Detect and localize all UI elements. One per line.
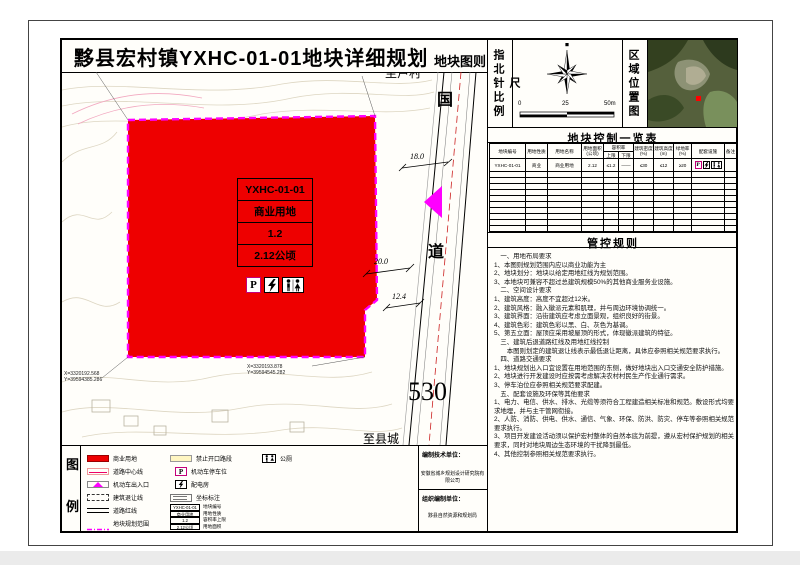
- parcel-area: 2.12公顷: [238, 245, 312, 266]
- th-green: 绿地率(%): [674, 144, 692, 159]
- th-nature: 用地性质: [526, 144, 548, 159]
- cell-density: ≤30: [634, 159, 654, 172]
- control-table-empty-rows: [490, 172, 737, 232]
- rule-line: 2、地块进行开发建设时应按需考虑解决农村村民生产作业通行需求。: [494, 373, 734, 382]
- table-cell-empty: [725, 226, 737, 232]
- rules-title: 管控规则: [489, 235, 737, 251]
- table-cell-empty: [674, 226, 692, 232]
- th-far: 容积率: [604, 144, 634, 152]
- scale-tick-25: 25: [562, 101, 569, 107]
- table-cell-empty: [619, 226, 634, 232]
- dest-label-south: 至县城: [363, 430, 399, 445]
- parking-icon: P: [175, 467, 187, 476]
- rule-line: 2、地块划分：地块以给定用地红线为规划范围。: [494, 270, 734, 279]
- parcel-facility-icons: P: [246, 277, 304, 293]
- legend-label-char2: 例: [66, 496, 79, 515]
- dim-setback: 20.0: [374, 257, 388, 266]
- table-cell-empty: [634, 226, 654, 232]
- scale-tick-50: 50m: [604, 101, 616, 107]
- rule-line: 三、建筑后退道路红线及用地红线控制: [494, 339, 734, 348]
- th-far-min: 下限: [619, 152, 634, 159]
- cell-height: ≤12: [654, 159, 674, 172]
- rule-line: 4、其他控制参照相关规范要求执行。: [494, 451, 734, 460]
- cell-name: 商业用地: [548, 159, 582, 172]
- redline-swatch: [87, 508, 109, 513]
- rules-text: 一、用地布局要求1、本图则规划范围内应以商业功能为主2、地块划分：地块以给定用地…: [494, 253, 734, 529]
- legend-item-commercial: 商业用地: [87, 454, 137, 463]
- location-cell-divider-a: [622, 40, 623, 127]
- table-cell-empty: [526, 226, 548, 232]
- table-cell-empty: [692, 226, 725, 232]
- road-name-char1: 国: [437, 86, 453, 110]
- building-footprints: [92, 400, 304, 435]
- boundary-swatch: [87, 520, 109, 527]
- th-code: 地块编号: [490, 144, 526, 159]
- entrance-swatch: [87, 481, 109, 488]
- table-row: YXHC-01-01 商业 商业用地 2.12 ≤1.2 —— ≤30 ≤12 …: [490, 159, 737, 172]
- location-map-image[interactable]: [648, 40, 737, 127]
- table-cell-empty: [548, 226, 582, 232]
- control-table: 地块编号 用地性质 用地名称 用地面积(公顷) 容积率 建筑密度(%) 建筑高度…: [489, 143, 737, 232]
- cell-note: [725, 159, 737, 172]
- tech-unit-value: 安徽省城乡规划设计研究院有限公司: [419, 470, 486, 484]
- legend-item-setback: 建筑退让线: [87, 493, 143, 502]
- legend-item-entrance: 机动车出入口: [87, 480, 149, 489]
- scale-bar-icon: [520, 112, 614, 117]
- coord-label-bottommid: X=3320193.878Y=39594545.282: [247, 364, 285, 376]
- tech-unit-label: 编制技术单位：: [422, 450, 464, 459]
- rule-line: 3、建筑界面：沿街建筑应考虑立面景观，组织良好的街景。: [494, 313, 734, 322]
- panel-divider: [487, 40, 488, 532]
- row-divider-1: [487, 127, 738, 128]
- toilet-icon: [282, 277, 304, 293]
- location-panel-label: 区域位置图: [625, 47, 641, 121]
- road-center-swatch: [87, 468, 109, 475]
- dim-half-width: 12.4: [392, 292, 406, 301]
- power-room-icon: [175, 480, 187, 489]
- table-row-empty: [490, 226, 737, 232]
- legend-item-power: 配电房: [170, 480, 209, 489]
- toilet-icon: [711, 161, 722, 169]
- legend-label-divider: [80, 445, 81, 532]
- legend-item-no-opening: 禁止开口路段: [170, 454, 232, 463]
- th-area: 用地面积(公顷): [582, 144, 604, 159]
- road-name-char2: 道: [428, 238, 444, 262]
- power-room-icon: [703, 161, 710, 169]
- parcel-info-box: YXHC-01-01 商业用地 1.2 2.12公顷: [237, 178, 313, 267]
- th-name: 用地名称: [548, 144, 582, 159]
- coord-label-bottomleft: X=3320192.568Y=39594385.286: [64, 371, 102, 383]
- dim-road-width: 18.0: [410, 152, 424, 161]
- cell-green: ≥20: [674, 159, 692, 172]
- legend-item-parking: P 机动车停车位: [170, 467, 227, 476]
- parcel-code: YXHC-01-01: [238, 179, 312, 201]
- legend-item-coordinate: 坐标标注: [170, 493, 220, 502]
- cell-far-max: ≤1.2: [604, 159, 619, 172]
- cell-code: YXHC-01-01: [490, 159, 526, 172]
- sheet-type-label: 地块图则: [420, 51, 486, 70]
- legend-label-char1: 图: [66, 454, 79, 473]
- org-unit-label: 组织编制单位：: [422, 494, 464, 503]
- cell-nature: 商业: [526, 159, 548, 172]
- legend-minitable: YXHC-01-01地块编号 商业用地用地性质 1.2容积率上限 2.12公顷用…: [170, 504, 226, 530]
- rule-line: 3、项目开发建设活动须以保护宏村整体的自然本底为前提，遵从宏村保护规划的相关要求…: [494, 433, 734, 450]
- coord-label-topright: X=3320326.470Y=39594848.731: [327, 72, 365, 74]
- scale-tick-0: 0: [518, 101, 521, 107]
- legend-top-border: [62, 445, 487, 446]
- legend-item-road-center: 道路中心线: [87, 467, 143, 476]
- road-number: 530: [408, 377, 447, 407]
- setback-swatch: [87, 494, 109, 501]
- org-unit-value: 黟县自然资源和规划局: [419, 512, 486, 519]
- rule-line: 本图则划定的建筑退让线表示最低退让距离，具体应参照相关规范要求执行。: [494, 348, 734, 357]
- legend-item-boundary: 地块规划范围: [87, 519, 149, 528]
- rule-line: 2、人防、消防、供电、供水、通信、气象、环保、防洪、防灾、停车等参照相关规范要求…: [494, 416, 734, 433]
- parcel-use: 商业用地: [238, 201, 312, 223]
- th-height: 建筑高度(m): [654, 144, 674, 159]
- commercial-swatch: [87, 455, 109, 462]
- page-shadow: [0, 551, 800, 565]
- rule-line: 一、用地布局要求: [494, 253, 734, 262]
- table-cell-empty: [604, 226, 619, 232]
- location-marker: [696, 96, 701, 101]
- coordinate-swatch: [170, 494, 192, 502]
- rule-line: 5、第五立面：屋顶应采用坡屋顶的形式，体现徽派建筑的特征。: [494, 330, 734, 339]
- parcel-far: 1.2: [238, 223, 312, 245]
- rule-line: 四、道路交通要求: [494, 356, 734, 365]
- plan-sheet: 黟县宏村镇YXHC-01-01地块详细规划 地块图则: [0, 0, 800, 565]
- cell-area: 2.12: [582, 159, 604, 172]
- th-facility: 配套设施: [692, 144, 725, 159]
- rule-line: 2、建筑风格：融入徽派元素和肌理，并与周边环境协调统一。: [494, 305, 734, 314]
- rule-line: 1、电力、电信、供水、排水、光缆等须符合工程建造相关标准和规范。敷设形式均要求地…: [494, 399, 734, 416]
- no-opening-swatch: [170, 455, 192, 462]
- rule-line: 五、配套设施及环保等其他要求: [494, 391, 734, 400]
- th-density: 建筑密度(%): [634, 144, 654, 159]
- table-cell-empty: [582, 226, 604, 232]
- map-canvas[interactable]: YXHC-01-01 商业用地 1.2 2.12公顷 P: [62, 72, 487, 445]
- rule-line: 二、空间设计要求: [494, 287, 734, 296]
- rule-line: 3、停车泊位应参照相关规范要求配建。: [494, 382, 734, 391]
- row-divider-3: [487, 232, 738, 233]
- dest-label-north: 至卢村: [385, 72, 421, 81]
- table-cell-empty: [490, 226, 526, 232]
- table-cell-empty: [654, 226, 674, 232]
- compass-cell: 0 25 50m: [512, 40, 622, 127]
- north-arrow-icon: [512, 40, 622, 127]
- cell-far-min: ——: [619, 159, 634, 172]
- power-room-icon: [264, 277, 279, 293]
- parking-icon: P: [695, 161, 702, 169]
- legend-item-toilet: 公厕: [258, 454, 292, 463]
- rule-line: 1、本图则规划范围内应以商业功能为主: [494, 262, 734, 271]
- legend-item-redline: 道路红线: [87, 506, 137, 515]
- cell-facility: P: [692, 159, 725, 172]
- th-note: 备注: [725, 144, 737, 159]
- parking-icon: P: [246, 277, 261, 293]
- toilet-icon: [262, 454, 276, 463]
- row-divider-4: [487, 247, 738, 248]
- rule-line: 1、建筑高度：高度不宜超过12米。: [494, 296, 734, 305]
- th-far-max: 上限: [604, 152, 619, 159]
- credits-divider: [418, 489, 487, 490]
- page-title: 黟县宏村镇YXHC-01-01地块详细规划: [74, 42, 428, 71]
